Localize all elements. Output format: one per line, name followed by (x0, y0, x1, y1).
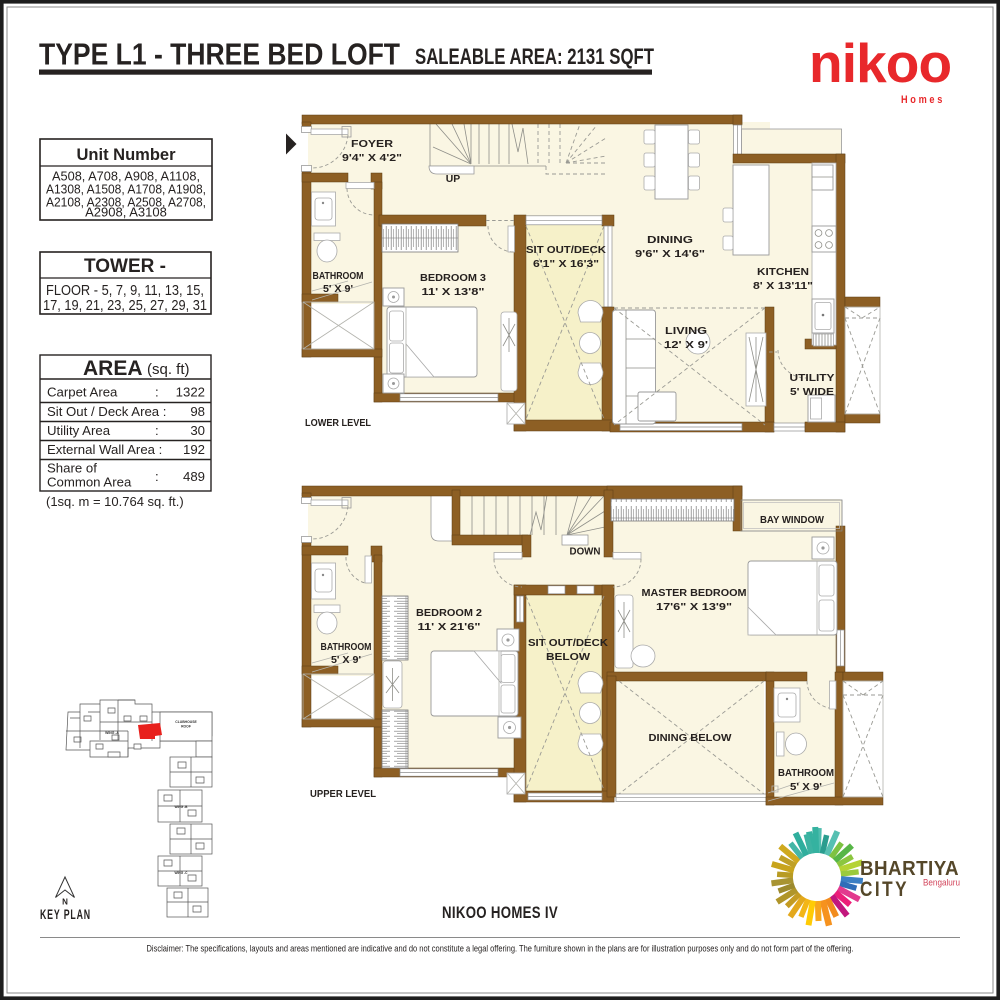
svg-text:TYPE L1 - THREE BED LOFT: TYPE L1 - THREE BED LOFT (39, 37, 400, 72)
svg-text::: : (155, 423, 159, 438)
svg-text:5' X 9': 5' X 9' (790, 782, 822, 793)
svg-text:CLUBHOUSE: CLUBHOUSE (175, 720, 197, 724)
svg-text:12' X 9': 12' X 9' (664, 340, 708, 351)
svg-text:WING -A: WING -A (105, 731, 119, 735)
svg-text:UPPER LEVEL: UPPER LEVEL (310, 789, 377, 800)
svg-text:SALEABLE AREA: 2131 SQFT: SALEABLE AREA: 2131 SQFT (415, 44, 654, 69)
svg-text:LOWER LEVEL: LOWER LEVEL (305, 418, 372, 429)
svg-text:FLOOR - 5, 7, 9, 11, 13, 15,: FLOOR - 5, 7, 9, 11, 13, 15, (46, 283, 204, 299)
svg-text:AREA: AREA (83, 357, 143, 380)
svg-text:BAY WINDOW: BAY WINDOW (760, 515, 824, 526)
svg-text::: : (155, 469, 159, 484)
svg-text:BATHROOM: BATHROOM (778, 768, 834, 779)
svg-text:489: 489 (183, 469, 205, 484)
svg-text:A2908, A3108: A2908, A3108 (85, 205, 167, 220)
svg-text:BELOW: BELOW (546, 652, 590, 663)
svg-text:DINING: DINING (647, 235, 693, 246)
svg-text:BEDROOM 3: BEDROOM 3 (420, 273, 486, 284)
svg-text:BEDROOM 2: BEDROOM 2 (416, 608, 482, 619)
svg-text::: : (155, 385, 159, 400)
svg-text:WING -B: WING -B (175, 805, 189, 809)
svg-text:Utility Area: Utility Area (47, 423, 111, 438)
svg-text:DINING BELOW: DINING BELOW (649, 733, 732, 744)
svg-text:KITCHEN: KITCHEN (757, 267, 809, 278)
svg-text:TOWER -: TOWER - (84, 256, 166, 277)
svg-text:Sit Out / Deck Area :: Sit Out / Deck Area : (47, 404, 166, 419)
svg-text:LIVING: LIVING (665, 326, 707, 337)
svg-text:Common Area: Common Area (47, 475, 132, 490)
svg-text:FOYER: FOYER (351, 139, 394, 150)
svg-text:6'1" X 16'3": 6'1" X 16'3" (533, 259, 599, 270)
svg-text:192: 192 (183, 442, 205, 457)
svg-text:DOWN: DOWN (570, 547, 601, 558)
svg-text:KEY PLAN: KEY PLAN (40, 907, 91, 922)
svg-text:nikoo: nikoo (809, 32, 951, 94)
svg-text:5' X 9': 5' X 9' (331, 655, 361, 666)
svg-text:ROOF: ROOF (181, 725, 191, 729)
svg-text:(1sq. m = 10.764 sq. ft.): (1sq. m = 10.764 sq. ft.) (46, 494, 184, 509)
svg-text:NIKOO HOMES IV: NIKOO HOMES IV (442, 904, 558, 922)
svg-text:BATHROOM: BATHROOM (321, 642, 372, 653)
svg-text:Carpet Area: Carpet Area (47, 385, 118, 400)
svg-text:Share of: Share of (47, 461, 97, 476)
svg-text:5' X 9': 5' X 9' (323, 284, 353, 295)
svg-text:9'6" X 14'6": 9'6" X 14'6" (635, 249, 705, 260)
svg-text:MASTER BEDROOM: MASTER BEDROOM (642, 588, 747, 599)
svg-text:External Wall Area :: External Wall Area : (47, 442, 162, 457)
svg-text:SIT OUT/DECK: SIT OUT/DECK (528, 638, 609, 649)
svg-text:SIT OUT/DECK: SIT OUT/DECK (526, 245, 607, 256)
svg-text:N: N (62, 898, 68, 907)
svg-text:UP: UP (446, 174, 461, 185)
svg-text:Bengaluru: Bengaluru (923, 878, 960, 889)
svg-text:98: 98 (190, 404, 205, 419)
svg-text:Disclaimer: The specifications: Disclaimer: The specifications, layouts … (147, 944, 854, 954)
svg-text:WING -C: WING -C (175, 871, 189, 875)
svg-text:5' WIDE: 5' WIDE (790, 387, 834, 398)
svg-text:(sq. ft): (sq. ft) (147, 361, 190, 378)
svg-text:30: 30 (190, 423, 205, 438)
svg-text:Homes: Homes (901, 94, 945, 106)
svg-text:11' X 13'8": 11' X 13'8" (422, 287, 485, 298)
svg-text:8' X 13'11": 8' X 13'11" (753, 281, 813, 292)
svg-text:17, 19, 21, 23, 25, 27, 29, 31: 17, 19, 21, 23, 25, 27, 29, 31 (43, 298, 207, 314)
svg-text:UTILITY: UTILITY (790, 373, 835, 384)
svg-text:11' X 21'6": 11' X 21'6" (418, 622, 481, 633)
svg-text:CITY: CITY (860, 878, 909, 901)
svg-text:1322: 1322 (176, 385, 205, 400)
svg-text:Unit Number: Unit Number (77, 146, 177, 164)
svg-text:9'4" X 4'2": 9'4" X 4'2" (342, 153, 402, 164)
svg-text:17'6" X 13'9": 17'6" X 13'9" (656, 602, 732, 613)
svg-text:BATHROOM: BATHROOM (313, 271, 364, 282)
